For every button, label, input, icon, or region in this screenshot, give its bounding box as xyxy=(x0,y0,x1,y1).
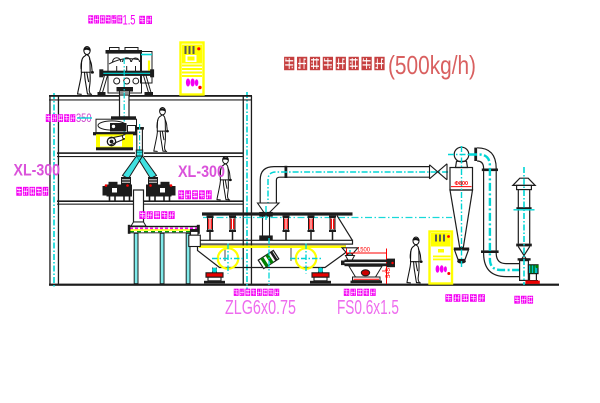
svg-text:545: 545 xyxy=(386,267,392,278)
svg-text:1.5: 1.5 xyxy=(123,12,136,28)
svg-text:XL-300: XL-300 xyxy=(14,162,61,180)
svg-text:FS0.6x1.5: FS0.6x1.5 xyxy=(337,297,399,319)
svg-text:Φ800: Φ800 xyxy=(455,181,469,187)
svg-text:(500kg/h): (500kg/h) xyxy=(388,50,476,80)
svg-text:1500: 1500 xyxy=(357,248,371,254)
svg-text:ZLG6x0.75: ZLG6x0.75 xyxy=(225,297,296,319)
svg-text:350: 350 xyxy=(76,113,92,125)
svg-text:XL-300: XL-300 xyxy=(178,163,225,181)
